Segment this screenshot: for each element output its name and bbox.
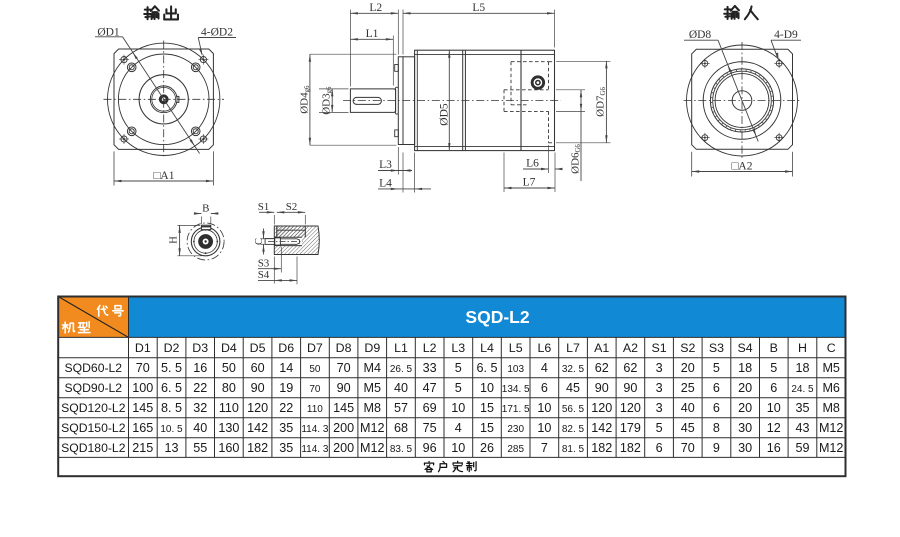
svg-text:200: 200 (333, 421, 354, 435)
svg-text:M6: M6 (822, 381, 840, 395)
svg-text:3: 3 (656, 381, 663, 395)
svg-text:47: 47 (423, 381, 437, 395)
svg-text:5: 5 (656, 421, 663, 435)
svg-text:82. 5: 82. 5 (562, 424, 585, 435)
svg-text:83. 5: 83. 5 (390, 444, 413, 455)
svg-text:D9: D9 (364, 341, 380, 355)
svg-text:171. 5: 171. 5 (502, 404, 530, 415)
svg-text:145: 145 (132, 401, 153, 415)
svg-text:D7: D7 (307, 341, 323, 355)
svg-text:26: 26 (480, 441, 494, 455)
svg-text:18: 18 (738, 361, 752, 375)
svg-text:M8: M8 (364, 401, 382, 415)
svg-text:L7: L7 (566, 341, 580, 355)
svg-text:96: 96 (423, 441, 437, 455)
svg-text:15: 15 (480, 421, 494, 435)
svg-text:57: 57 (394, 401, 408, 415)
svg-text:L1: L1 (394, 341, 408, 355)
svg-text:3: 3 (656, 361, 663, 375)
svg-text:6. 5: 6. 5 (161, 381, 182, 395)
svg-text:SQD-L2: SQD-L2 (465, 307, 529, 327)
svg-text:24. 5: 24. 5 (791, 384, 814, 395)
svg-text:4: 4 (541, 361, 548, 375)
svg-text:5. 5: 5. 5 (161, 361, 182, 375)
svg-text:62: 62 (595, 361, 609, 375)
svg-text:110: 110 (307, 404, 323, 415)
svg-text:14: 14 (279, 361, 293, 375)
svg-text:120: 120 (247, 401, 268, 415)
svg-text:ØD5: ØD5 (438, 103, 450, 126)
svg-text:6: 6 (713, 401, 720, 415)
svg-text:L7: L7 (523, 177, 536, 189)
svg-text:50: 50 (309, 364, 321, 375)
svg-text:90: 90 (623, 381, 637, 395)
svg-text:S3: S3 (258, 257, 270, 269)
svg-text:33: 33 (423, 361, 437, 375)
svg-text:90: 90 (251, 381, 265, 395)
svg-text:L3: L3 (451, 341, 465, 355)
svg-text:S1: S1 (258, 201, 270, 213)
svg-text:56. 5: 56. 5 (562, 404, 585, 415)
svg-text:D6: D6 (278, 341, 294, 355)
svg-text:C: C (827, 341, 836, 355)
svg-text:A2: A2 (623, 341, 638, 355)
svg-text:M5: M5 (822, 361, 840, 375)
svg-text:5: 5 (455, 381, 462, 395)
svg-text:M12: M12 (819, 441, 844, 455)
svg-text:L5: L5 (472, 2, 485, 14)
svg-text:6: 6 (541, 381, 548, 395)
svg-text:4: 4 (455, 421, 462, 435)
svg-text:50: 50 (222, 361, 236, 375)
svg-text:SQD90-L2: SQD90-L2 (65, 381, 123, 395)
svg-text:H: H (798, 341, 807, 355)
svg-text:134. 5: 134. 5 (502, 384, 530, 395)
svg-text:35: 35 (279, 441, 293, 455)
svg-text:6: 6 (713, 381, 720, 395)
svg-text:C: C (254, 238, 265, 245)
svg-text:S3: S3 (709, 341, 724, 355)
svg-text:6: 6 (656, 441, 663, 455)
svg-text:3: 3 (656, 401, 663, 415)
svg-text:114. 3: 114. 3 (301, 444, 328, 455)
svg-text:10. 5: 10. 5 (160, 424, 183, 435)
svg-text:69: 69 (423, 401, 437, 415)
svg-text:S4: S4 (258, 269, 270, 281)
svg-text:12: 12 (767, 421, 781, 435)
svg-text:165: 165 (132, 421, 153, 435)
svg-text:16: 16 (767, 441, 781, 455)
svg-text:182: 182 (247, 441, 268, 455)
svg-text:ØD8: ØD8 (689, 29, 712, 41)
svg-text:80: 80 (222, 381, 236, 395)
svg-text:D3: D3 (192, 341, 208, 355)
svg-text:L2: L2 (369, 2, 382, 14)
svg-text:182: 182 (620, 441, 641, 455)
svg-text:6. 5: 6. 5 (476, 361, 497, 375)
svg-text:SQD60-L2: SQD60-L2 (65, 361, 123, 375)
svg-text:8. 5: 8. 5 (161, 401, 182, 415)
svg-text:M12: M12 (360, 421, 385, 435)
svg-text:D2: D2 (164, 341, 180, 355)
svg-text:7: 7 (541, 441, 548, 455)
svg-text:40: 40 (193, 421, 207, 435)
svg-text:20: 20 (681, 361, 695, 375)
svg-text:D8: D8 (336, 341, 352, 355)
svg-text:90: 90 (337, 381, 351, 395)
svg-text:M12: M12 (360, 441, 385, 455)
svg-text:70: 70 (136, 361, 150, 375)
svg-text:75: 75 (423, 421, 437, 435)
svg-text:32. 5: 32. 5 (562, 364, 585, 375)
svg-text:4-D9: 4-D9 (774, 29, 798, 41)
svg-text:□A1: □A1 (153, 170, 174, 182)
svg-text:70: 70 (337, 361, 351, 375)
svg-text:L4: L4 (379, 177, 392, 189)
svg-text:5: 5 (770, 361, 777, 375)
svg-text:60: 60 (251, 361, 265, 375)
svg-text:18: 18 (795, 361, 809, 375)
svg-text:45: 45 (566, 381, 580, 395)
svg-text:70: 70 (681, 441, 695, 455)
svg-text:110: 110 (219, 401, 239, 415)
svg-text:68: 68 (394, 421, 408, 435)
svg-text:SQD180-L2: SQD180-L2 (61, 441, 126, 455)
svg-text:S2: S2 (286, 201, 298, 213)
svg-text:20: 20 (738, 401, 752, 415)
svg-text:L5: L5 (509, 341, 523, 355)
svg-text:43: 43 (795, 421, 809, 435)
svg-text:120: 120 (620, 401, 641, 415)
svg-text:215: 215 (132, 441, 153, 455)
svg-text:22: 22 (279, 401, 293, 415)
svg-text:4-ØD2: 4-ØD2 (201, 27, 233, 39)
svg-text:32: 32 (193, 401, 207, 415)
svg-text:10: 10 (451, 441, 465, 455)
svg-text:L1: L1 (366, 28, 379, 40)
svg-text:10: 10 (480, 381, 494, 395)
svg-text:62: 62 (623, 361, 637, 375)
svg-text:25: 25 (681, 381, 695, 395)
svg-text:S4: S4 (738, 341, 753, 355)
svg-text:16: 16 (193, 361, 207, 375)
svg-text:M5: M5 (364, 381, 382, 395)
svg-text:285: 285 (507, 444, 524, 455)
svg-text:L4: L4 (480, 341, 494, 355)
svg-text:30: 30 (738, 421, 752, 435)
svg-text:20: 20 (738, 381, 752, 395)
svg-text:120: 120 (591, 401, 612, 415)
svg-text:10: 10 (767, 401, 781, 415)
svg-text:H: H (169, 236, 180, 244)
svg-text:19: 19 (279, 381, 293, 395)
svg-text:100: 100 (132, 381, 153, 395)
svg-text:15: 15 (480, 401, 494, 415)
svg-text:13: 13 (164, 441, 178, 455)
svg-text:10: 10 (451, 401, 465, 415)
svg-text:L2: L2 (423, 341, 437, 355)
svg-text:ØD1: ØD1 (97, 26, 120, 38)
svg-text:81. 5: 81. 5 (562, 444, 585, 455)
svg-text:9: 9 (713, 441, 720, 455)
svg-text:L6: L6 (538, 341, 552, 355)
svg-text:59: 59 (795, 441, 809, 455)
svg-text:200: 200 (333, 441, 354, 455)
svg-text:M8: M8 (822, 401, 840, 415)
svg-text:35: 35 (279, 421, 293, 435)
svg-text:8: 8 (713, 421, 720, 435)
svg-text:103: 103 (507, 364, 524, 375)
svg-text:D4: D4 (221, 341, 237, 355)
svg-text:40: 40 (394, 381, 408, 395)
svg-text:SQD150-L2: SQD150-L2 (61, 421, 126, 435)
svg-text:B: B (202, 202, 209, 214)
svg-text:142: 142 (247, 421, 268, 435)
svg-text:D5: D5 (250, 341, 266, 355)
svg-text:5: 5 (455, 361, 462, 375)
svg-text:90: 90 (595, 381, 609, 395)
svg-text:S1: S1 (652, 341, 667, 355)
svg-text:35: 35 (795, 401, 809, 415)
svg-text:B: B (770, 341, 778, 355)
svg-text:L6: L6 (526, 158, 539, 170)
svg-text:S2: S2 (680, 341, 695, 355)
svg-text:SQD120-L2: SQD120-L2 (61, 401, 126, 415)
svg-text:114. 3: 114. 3 (301, 424, 328, 435)
svg-text:55: 55 (193, 441, 207, 455)
svg-text:L3: L3 (379, 159, 392, 171)
svg-text:M4: M4 (364, 361, 382, 375)
svg-text:45: 45 (681, 421, 695, 435)
svg-text:230: 230 (507, 424, 524, 435)
svg-text:142: 142 (591, 421, 612, 435)
svg-text:10: 10 (537, 401, 551, 415)
svg-text:160: 160 (218, 441, 239, 455)
svg-text:179: 179 (620, 421, 641, 435)
svg-text:5: 5 (713, 361, 720, 375)
svg-text:□A2: □A2 (731, 161, 752, 173)
svg-text:145: 145 (333, 401, 354, 415)
svg-text:182: 182 (591, 441, 612, 455)
svg-text:6: 6 (770, 381, 777, 395)
svg-text:A1: A1 (594, 341, 609, 355)
svg-text:70: 70 (309, 384, 321, 395)
svg-text:10: 10 (537, 421, 551, 435)
svg-text:D1: D1 (135, 341, 151, 355)
svg-text:26. 5: 26. 5 (390, 364, 413, 375)
svg-text:M12: M12 (819, 421, 844, 435)
svg-text:40: 40 (681, 401, 695, 415)
svg-text:130: 130 (218, 421, 239, 435)
svg-text:30: 30 (738, 441, 752, 455)
svg-text:22: 22 (193, 381, 207, 395)
